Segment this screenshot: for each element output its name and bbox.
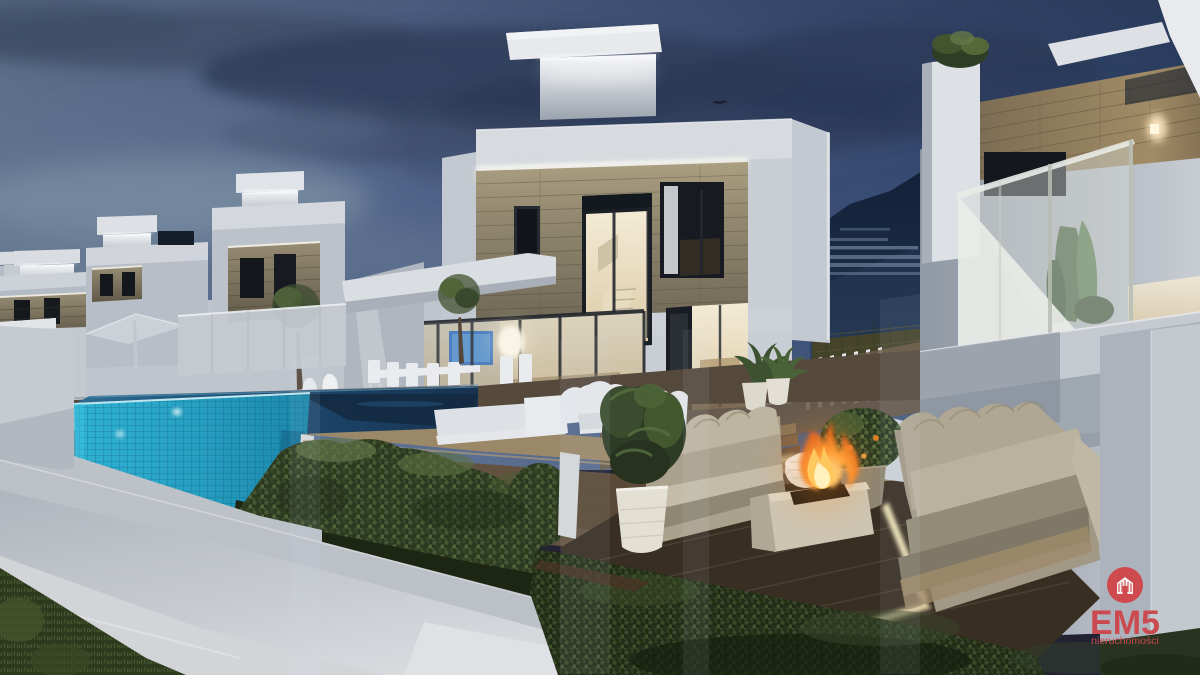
svg-text:nieruchomości: nieruchomości (1091, 635, 1159, 647)
